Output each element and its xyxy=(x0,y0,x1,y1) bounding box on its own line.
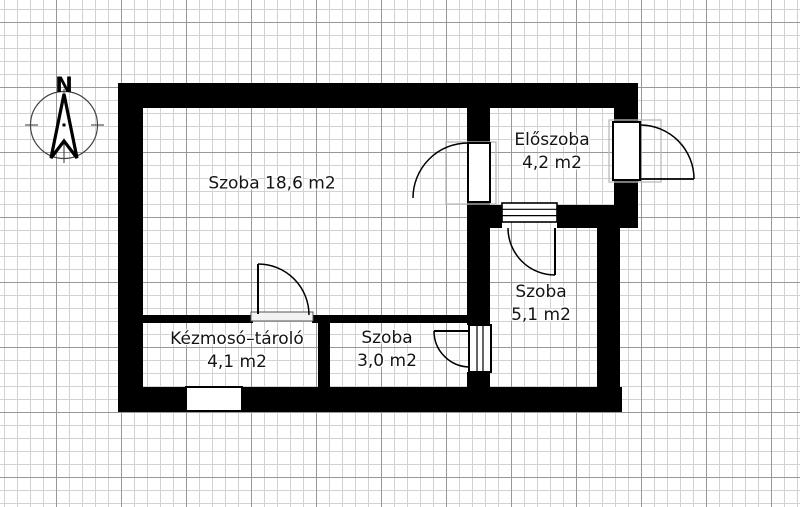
door-swing-arc xyxy=(258,264,309,315)
compass-north-label: N xyxy=(55,73,73,97)
room-name: Szoba xyxy=(357,327,417,350)
door-swing-arc xyxy=(434,331,470,367)
door-main-kezmoso xyxy=(251,264,313,321)
wall-segment-top xyxy=(118,83,638,108)
door-threshold xyxy=(251,312,313,321)
door-leaf xyxy=(468,143,490,202)
room-name: Kézmosó–tároló xyxy=(170,328,304,351)
compass-center-dot xyxy=(63,124,66,127)
room-area: 4,2 m2 xyxy=(514,152,589,175)
room-name: Előszoba xyxy=(514,129,589,152)
wall-segment-left xyxy=(118,83,143,412)
door-leaf xyxy=(613,122,640,180)
compass: N xyxy=(25,73,104,163)
wall-segment-divider-v1 xyxy=(467,108,490,143)
wall-segment-divider-h1 xyxy=(143,315,253,323)
room-area: 5,1 m2 xyxy=(511,304,571,327)
wall-segment-divider-v2 xyxy=(467,202,490,325)
steps xyxy=(502,203,557,222)
steps-and-door-eloszoba-szoba51 xyxy=(502,203,557,275)
room-label-szoba-186: Szoba 18,6 m2 xyxy=(208,173,335,196)
wall-segment-right-upper-a xyxy=(614,83,638,122)
wall-segment-right-lower xyxy=(597,228,620,387)
floorplan-drawing: N xyxy=(0,0,800,507)
door-main-eloszoba xyxy=(413,142,496,204)
room-area: 4,1 m2 xyxy=(170,351,304,374)
wall-segment-eloszoba-sill-right xyxy=(557,205,638,228)
door-szoba30-szoba51 xyxy=(434,325,491,372)
wall-segment-kezmoso-szoba xyxy=(318,323,330,387)
door-entrance xyxy=(609,120,694,182)
room-name: Szoba xyxy=(511,281,571,304)
door-swing-arc xyxy=(508,228,555,275)
wall-segment-eloszoba-sill-left xyxy=(490,205,502,228)
wall-segment-divider-v3 xyxy=(467,372,490,387)
door-leaf xyxy=(469,325,491,372)
room-name: Szoba 18,6 m2 xyxy=(208,174,335,194)
room-label-szoba-51: Szoba 5,1 m2 xyxy=(511,281,571,327)
room-label-kezmoso-tarolo: Kézmosó–tároló 4,1 m2 xyxy=(170,328,304,374)
door-swing-arc xyxy=(413,143,468,198)
door-swing-arc xyxy=(641,125,694,179)
floorplan-canvas: N xyxy=(0,0,800,507)
room-label-szoba-30: Szoba 3,0 m2 xyxy=(357,327,417,373)
wall-segment-divider-h2 xyxy=(312,315,467,323)
room-area: 3,0 m2 xyxy=(357,350,417,373)
window-kezmoso xyxy=(186,387,242,411)
room-label-eloszoba: Előszoba 4,2 m2 xyxy=(514,129,589,175)
